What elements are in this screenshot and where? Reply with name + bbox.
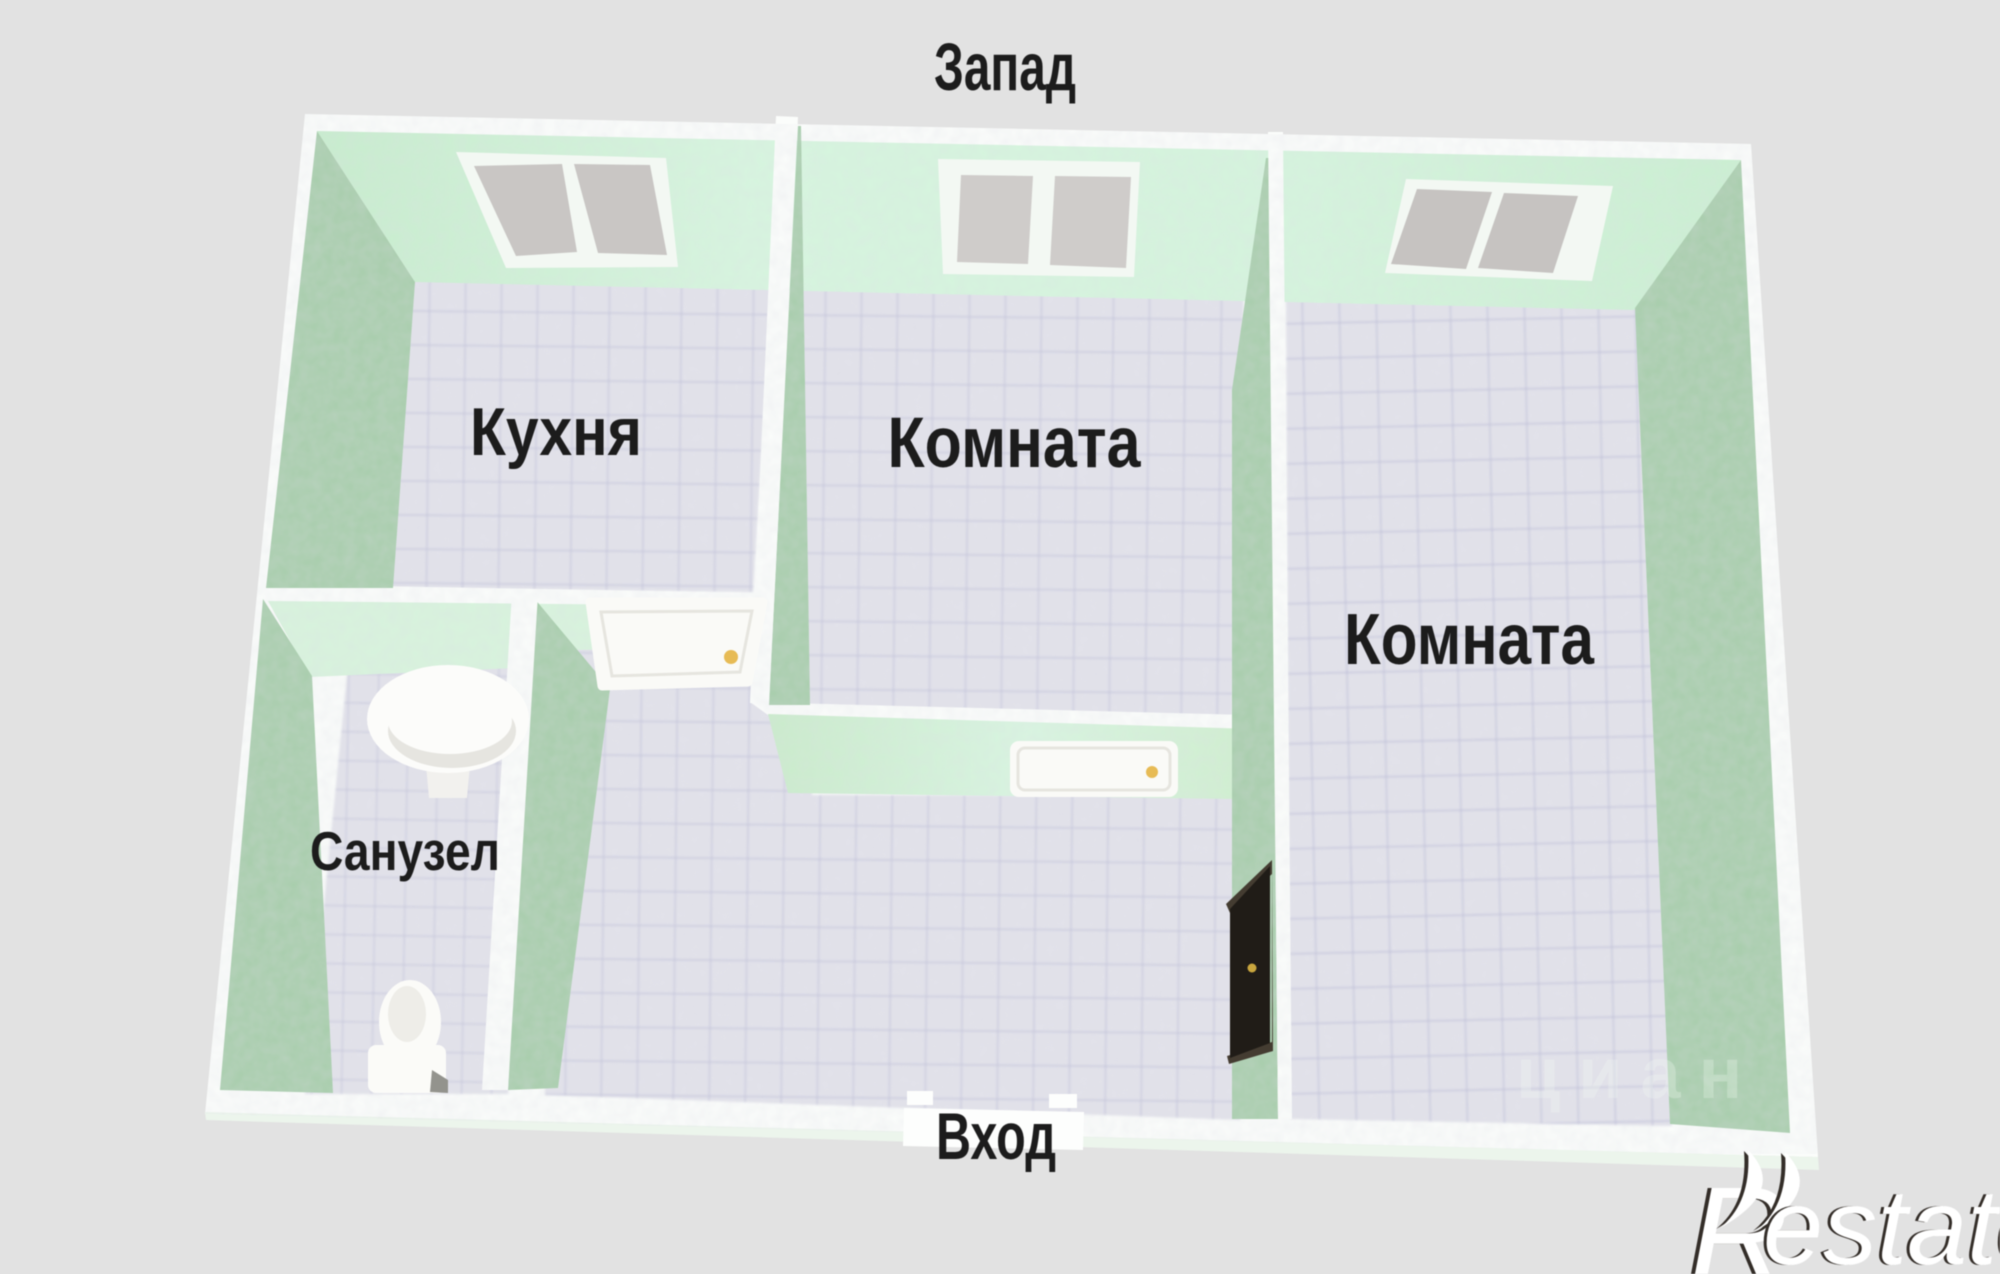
svg-text:Комната: Комната: [1344, 600, 1595, 680]
svg-text:Комната: Комната: [888, 404, 1141, 483]
svg-text:Кухня: Кухня: [470, 394, 642, 470]
svg-text:Запад: Запад: [934, 30, 1076, 105]
svg-text:estate: estate: [1763, 1166, 2000, 1274]
svg-text:циан: циан: [1516, 1034, 1760, 1114]
svg-text:Санузел: Санузел: [310, 820, 500, 882]
svg-text:Вход: Вход: [936, 1099, 1056, 1173]
